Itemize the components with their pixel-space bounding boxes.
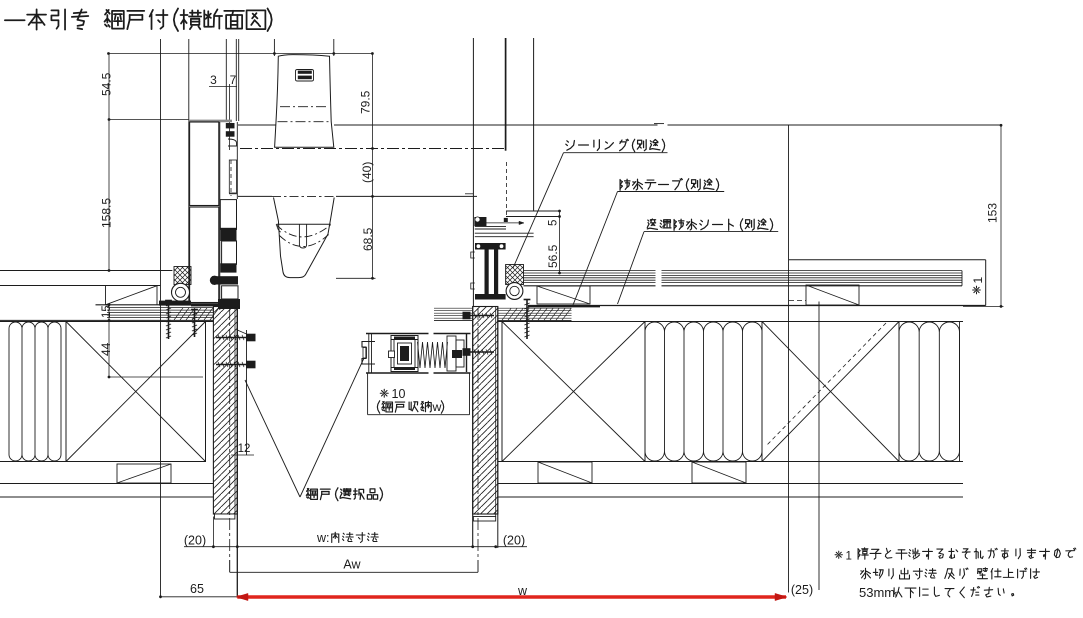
svg-text:54.5: 54.5 — [100, 72, 114, 96]
svg-text:3: 3 — [210, 73, 217, 87]
svg-text:53mm: 53mm — [859, 585, 895, 600]
svg-text:Aw: Aw — [343, 558, 361, 572]
svg-text:w: w — [432, 400, 442, 414]
svg-text:w: w — [517, 584, 528, 598]
svg-text:(20): (20) — [184, 534, 206, 548]
svg-text:44: 44 — [99, 342, 113, 356]
svg-text:12: 12 — [238, 443, 251, 455]
svg-text:158.5: 158.5 — [100, 198, 114, 228]
svg-text:10: 10 — [392, 387, 406, 401]
svg-text:153: 153 — [986, 203, 1000, 223]
svg-text:56.5: 56.5 — [546, 244, 560, 268]
svg-text:1: 1 — [846, 551, 852, 563]
svg-text:15: 15 — [101, 305, 113, 318]
svg-text:65: 65 — [190, 582, 204, 596]
svg-text:5: 5 — [548, 220, 560, 226]
svg-text:1: 1 — [971, 277, 985, 284]
svg-text:68.5: 68.5 — [361, 227, 375, 251]
svg-text:(40): (40) — [360, 162, 374, 183]
svg-text:(20): (20) — [503, 534, 525, 548]
svg-text:7: 7 — [230, 73, 237, 87]
svg-text:w:: w: — [316, 531, 330, 545]
svg-text:(25): (25) — [791, 583, 813, 597]
svg-text:79.5: 79.5 — [359, 90, 373, 114]
